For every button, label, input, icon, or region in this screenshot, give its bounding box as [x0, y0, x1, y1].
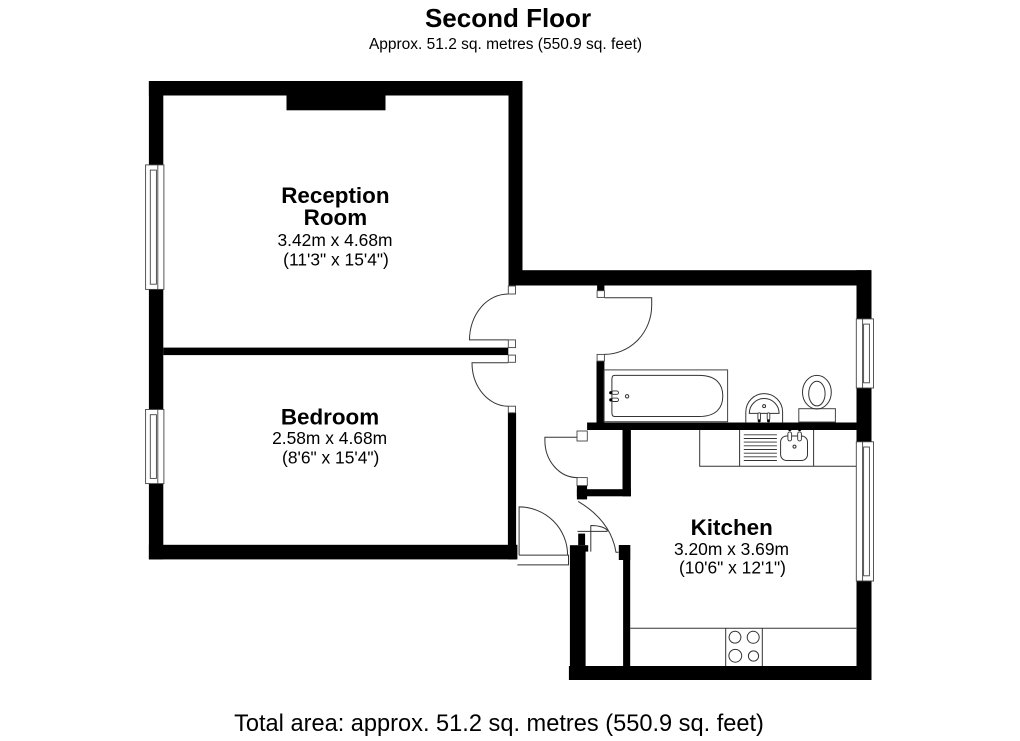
svg-text:Kitchen: Kitchen	[691, 515, 773, 540]
svg-text:3.20m x 3.69m: 3.20m x 3.69m	[674, 539, 789, 559]
svg-text:Approx. 51.2 sq. metres (550.9: Approx. 51.2 sq. metres (550.9 sq. feet)	[369, 36, 642, 53]
svg-text:3.42m x 4.68m: 3.42m x 4.68m	[277, 230, 392, 250]
svg-text:2.58m x 4.68m: 2.58m x 4.68m	[272, 428, 387, 448]
svg-text:(8'6" x 15'4"): (8'6" x 15'4")	[282, 448, 379, 468]
svg-text:Room: Room	[304, 205, 367, 230]
svg-text:Second Floor: Second Floor	[425, 3, 591, 33]
svg-text:(11'3" x 15'4"): (11'3" x 15'4")	[283, 250, 389, 270]
svg-text:(10'6" x 12'1"): (10'6" x 12'1")	[679, 558, 786, 578]
svg-text:Total area: approx. 51.2 sq. m: Total area: approx. 51.2 sq. metres (550…	[234, 711, 764, 737]
svg-text:Bedroom: Bedroom	[281, 404, 379, 429]
